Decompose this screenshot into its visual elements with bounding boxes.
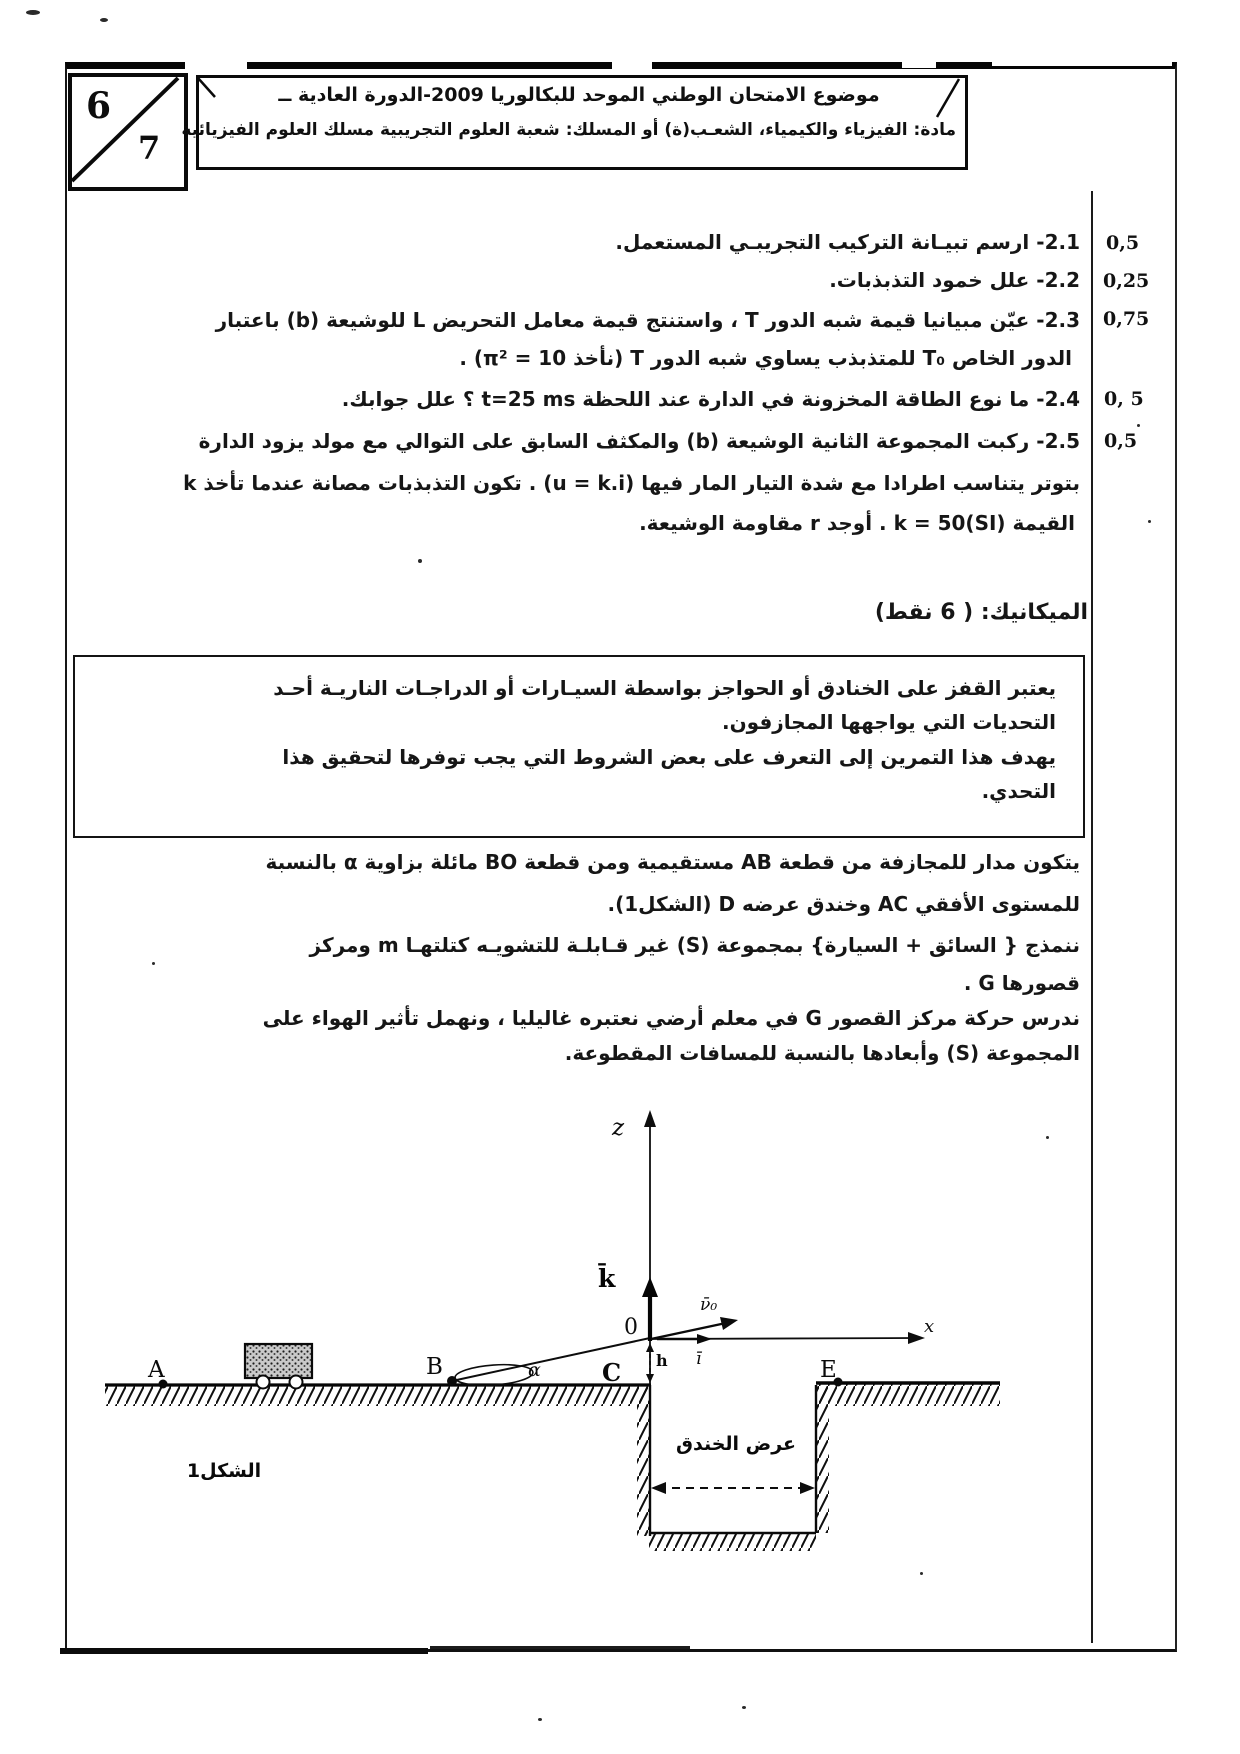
point-b-dot [447, 1376, 457, 1386]
ground-left [105, 1385, 651, 1406]
point-b-label: B [426, 1354, 443, 1380]
point-c-label: C [602, 1358, 621, 1387]
height-h-label: h [656, 1351, 668, 1370]
ground-right [816, 1383, 1000, 1406]
v0-vector-label: ν̄₀ [700, 1295, 717, 1315]
height-h-arrow-up [646, 1343, 654, 1352]
v0-vector-arrow [651, 1323, 726, 1339]
scanned-exam-page: { "page_corner": { "current_page": "6", … [0, 0, 1240, 1754]
i-vector-arrowhead [697, 1334, 712, 1344]
x-axis-arrowhead [908, 1332, 925, 1344]
point-a-label: A [147, 1357, 165, 1383]
corner-box-diagonal [72, 78, 178, 181]
trench-width-arrowhead-left [651, 1482, 666, 1494]
trench-width-label: عرض الخندق [676, 1433, 796, 1455]
header-notch-left [198, 78, 215, 97]
car-wheel-rear [257, 1376, 270, 1389]
origin-label: 0 [624, 1315, 638, 1340]
z-axis-arrowhead [644, 1110, 656, 1127]
v0-vector-arrowhead [720, 1317, 738, 1330]
point-e-label: E [820, 1357, 837, 1383]
car-wheel-front [290, 1376, 303, 1389]
trench-width-arrowhead-right [800, 1482, 815, 1494]
header-notch-right [937, 79, 959, 117]
i-vector-label: ī [696, 1349, 703, 1369]
height-h-arrow-down [646, 1374, 654, 1383]
k-vector-arrowhead [642, 1277, 658, 1297]
x-axis-label: x [924, 1316, 934, 1337]
trench-bottom [649, 1533, 816, 1551]
figure-1: z x k̄ 0 ν̄₀ ī A B C E α h عرض الخندق ال… [0, 0, 1240, 1754]
k-vector-label: k̄ [597, 1263, 616, 1293]
angle-alpha-label: α [528, 1359, 541, 1381]
z-axis-label: z [611, 1115, 625, 1141]
car-body [245, 1344, 312, 1378]
figure-caption: الشكل1 [187, 1460, 261, 1482]
